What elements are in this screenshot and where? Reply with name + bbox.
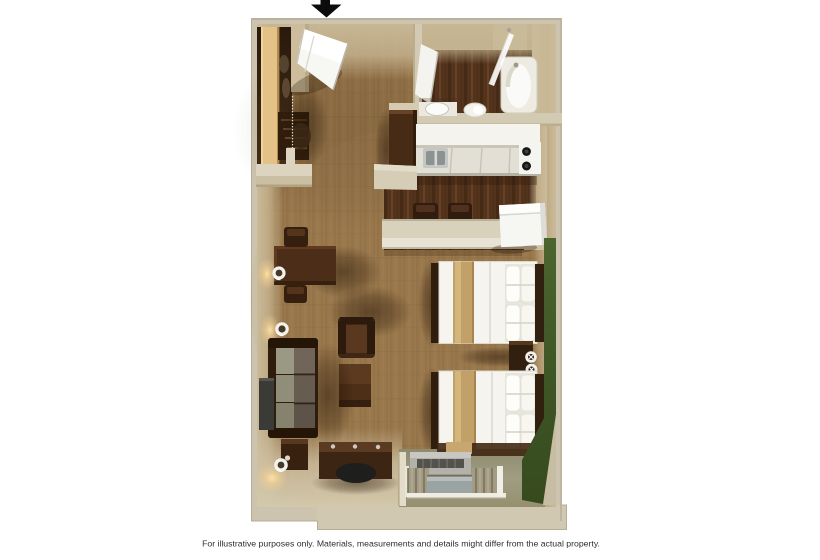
svg-text:For illustrative purposes only: For illustrative purposes only. Material… (202, 539, 600, 549)
